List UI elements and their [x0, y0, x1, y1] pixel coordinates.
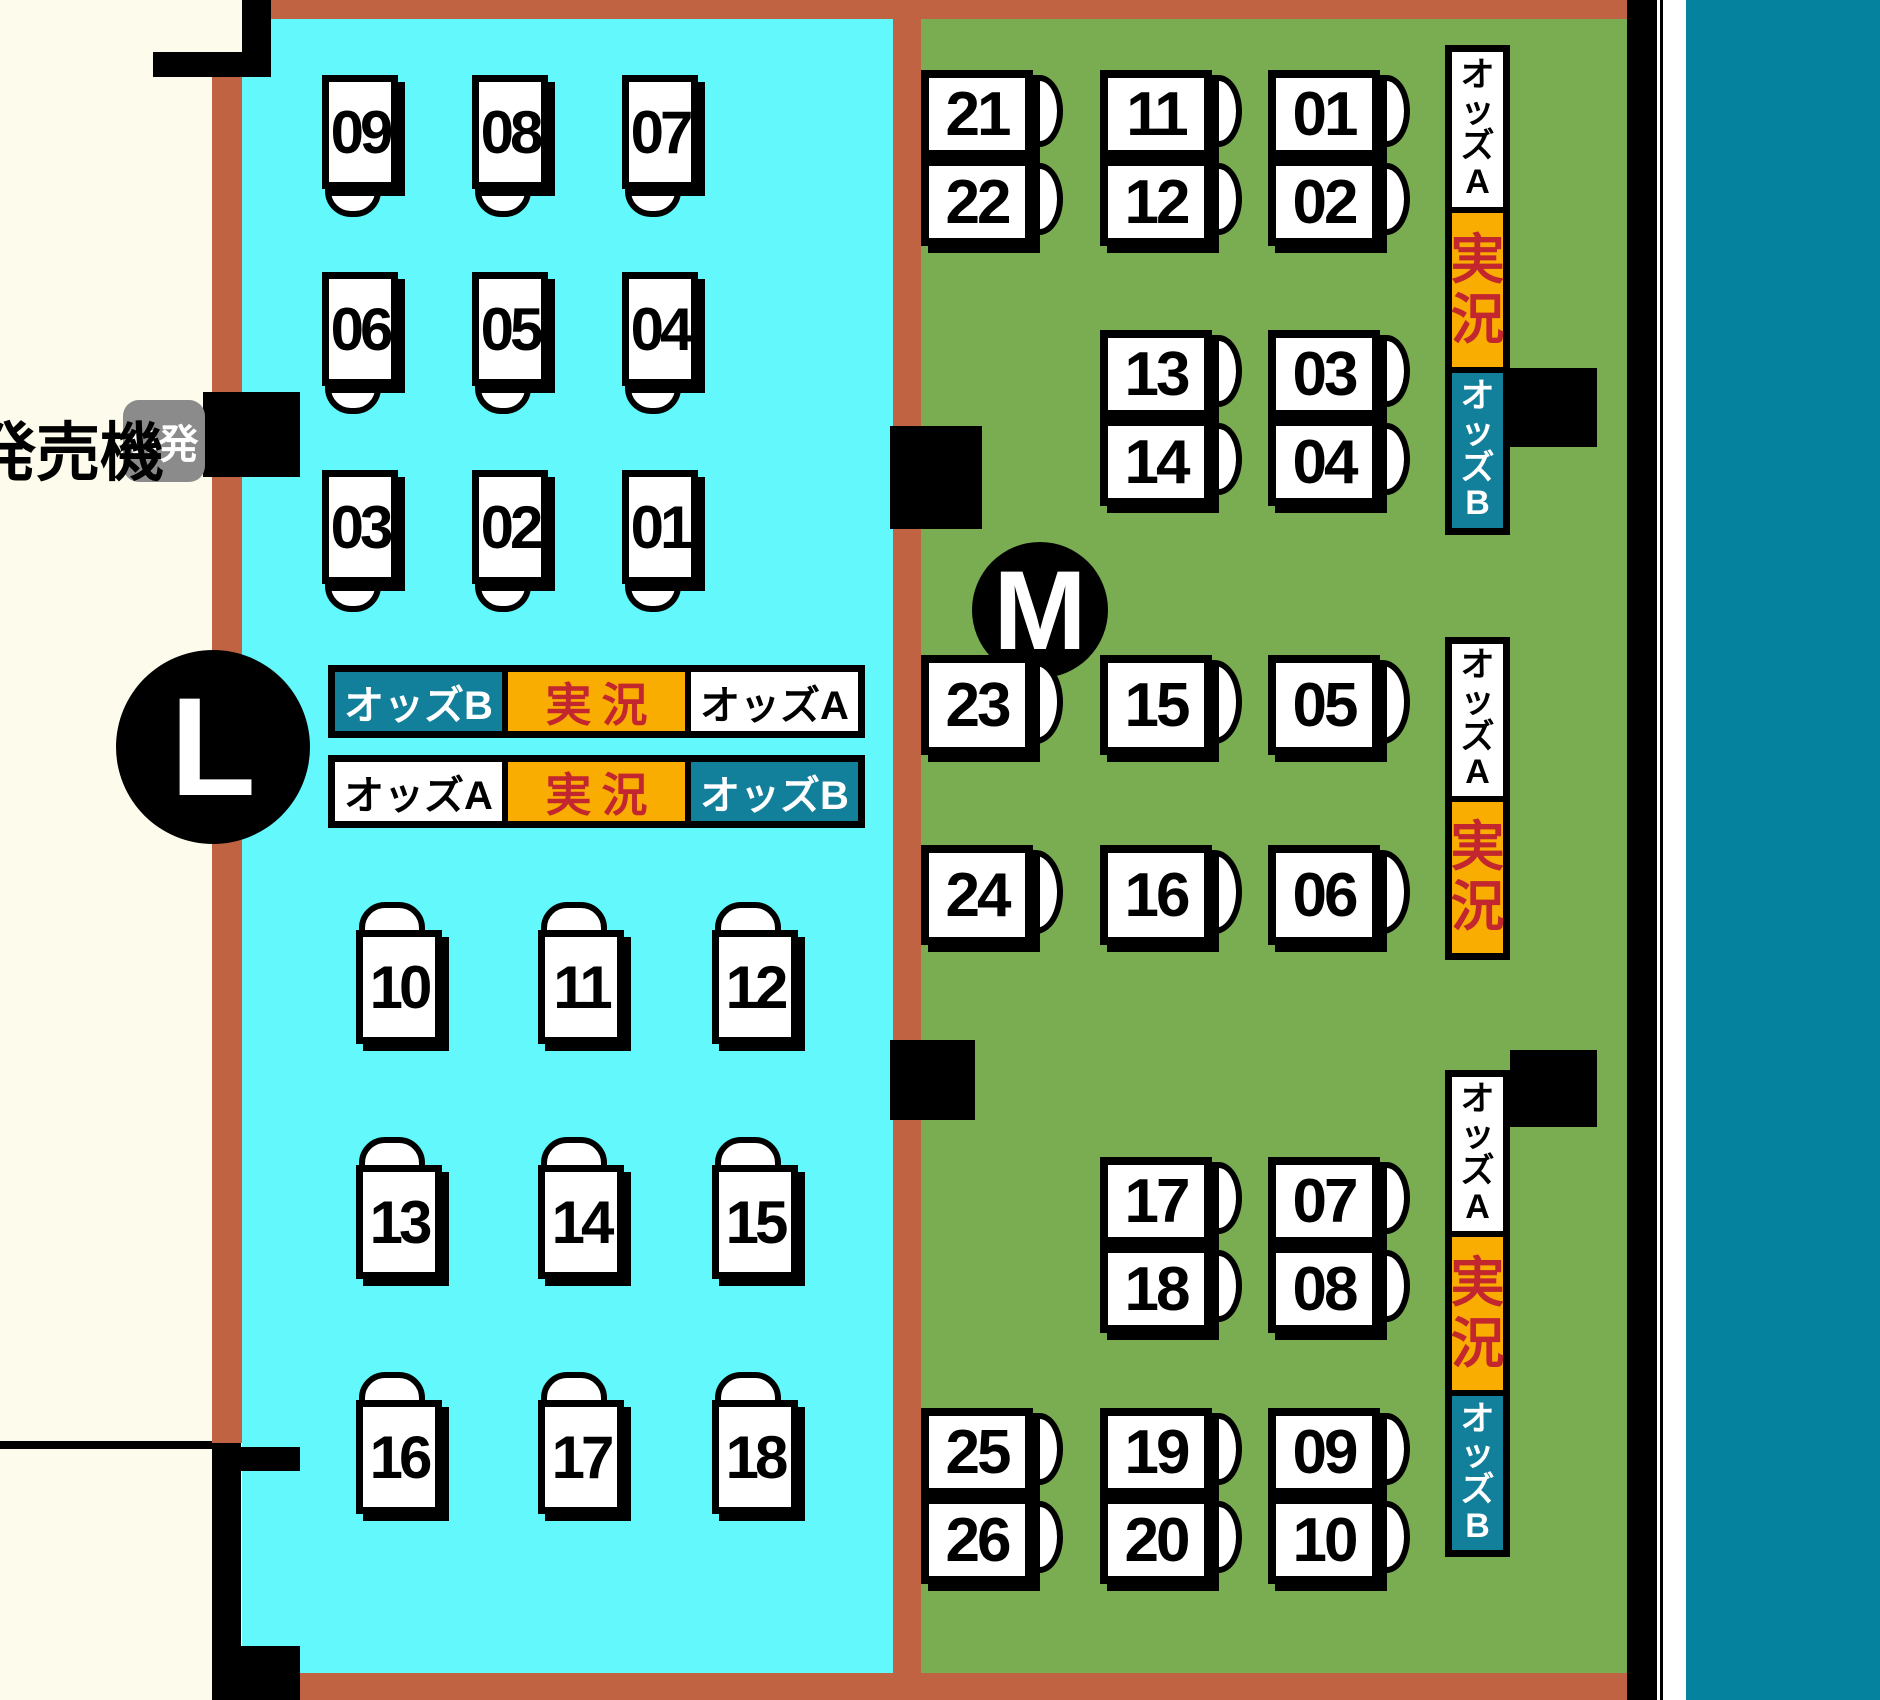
marker-number: 19 — [1125, 1417, 1188, 1488]
marker-number: 05 — [1293, 670, 1356, 741]
sign-segment-live: 実況 — [1452, 213, 1503, 368]
monitor-number: 04 — [631, 295, 690, 364]
marker-box: 17 — [1100, 1157, 1212, 1245]
marker-number: 08 — [1293, 1254, 1356, 1325]
sign-segment-char: ズ — [1461, 129, 1495, 165]
bottom-left-wall-block-top — [212, 1447, 300, 1471]
monitor-number: 08 — [481, 98, 540, 167]
sign-segment-char: ズ — [1461, 720, 1495, 756]
marker-15: 15 — [1100, 655, 1212, 755]
monitor-screen: 06 — [322, 272, 398, 386]
monitor-number: 02 — [481, 493, 540, 562]
sign-segment-char: ズ — [1461, 451, 1495, 487]
marker-number: 12 — [1125, 167, 1188, 238]
marker-box: 20 — [1100, 1496, 1212, 1584]
marker-07: 07 — [1268, 1157, 1380, 1245]
sign-segment-odds_a: オッズA — [1452, 644, 1503, 796]
marker-number: 14 — [1125, 427, 1188, 498]
marker-number: 26 — [946, 1505, 1009, 1576]
marker-10: 10 — [1268, 1496, 1380, 1584]
monitor-05: 05 — [472, 272, 548, 414]
marker-24: 24 — [921, 845, 1033, 945]
marker-number: 22 — [946, 167, 1009, 238]
marker-group-23: 23 — [921, 655, 1063, 755]
marker-group-05: 05 — [1268, 655, 1410, 755]
sign-segment-odds_a: オッズA — [1452, 1077, 1503, 1231]
marker-box: 18 — [1100, 1245, 1212, 1333]
sign-segment-char: B — [1465, 486, 1490, 522]
sign-segment-odds_b: オッズB — [335, 672, 502, 731]
marker-box: 16 — [1100, 845, 1212, 945]
marker-17: 17 — [1100, 1157, 1212, 1245]
monitor-07: 07 — [622, 75, 698, 217]
marker-box: 24 — [921, 845, 1033, 945]
monitor-screen: 02 — [472, 470, 548, 584]
border-top — [271, 0, 1627, 19]
monitor-08: 08 — [472, 75, 548, 217]
border-divider — [893, 19, 921, 1700]
marker-number: 21 — [946, 79, 1009, 150]
marker-box: 06 — [1268, 845, 1380, 945]
monitor-12: 12 — [712, 902, 798, 1044]
sign-segment-char: ッ — [1461, 1437, 1495, 1473]
marker-number: 09 — [1293, 1417, 1356, 1488]
sign-bar-vertical-2: オッズA実況 — [1445, 637, 1510, 960]
monitor-number: 16 — [370, 1423, 429, 1492]
sign-segment-odds_a: オッズA — [1452, 52, 1503, 207]
top-left-wall-horizontal — [153, 52, 271, 77]
marker-number: 13 — [1125, 339, 1188, 410]
sign-segment-char: ッ — [1461, 1118, 1495, 1154]
monitor-number: 03 — [331, 493, 390, 562]
sign-segment-live: 実況 — [508, 762, 685, 821]
marker-box: 10 — [1268, 1496, 1380, 1584]
monitor-number: 13 — [370, 1188, 429, 1257]
sign-segment-label: オッズB — [700, 763, 849, 821]
marker-number: 20 — [1125, 1505, 1188, 1576]
marker-20: 20 — [1100, 1496, 1212, 1584]
monitor-screen: 17 — [538, 1400, 624, 1514]
monitor-06: 06 — [322, 272, 398, 414]
sign-segment-label: 実況 — [546, 669, 658, 735]
marker-25: 25 — [921, 1408, 1033, 1496]
marker-number: 11 — [1126, 79, 1186, 150]
marker-box: 23 — [921, 655, 1033, 755]
marker-21: 21 — [921, 70, 1033, 158]
monitor-17: 17 — [538, 1372, 624, 1514]
water-area — [1686, 0, 1880, 1700]
marker-number: 25 — [946, 1417, 1009, 1488]
marker-06: 06 — [1268, 845, 1380, 945]
monitor-number: 06 — [331, 295, 390, 364]
monitor-number: 12 — [726, 953, 785, 1022]
monitor-number: 01 — [631, 493, 690, 562]
marker-box: 22 — [921, 158, 1033, 246]
marker-group-09-10: 0910 — [1268, 1408, 1410, 1584]
monitor-04: 04 — [622, 272, 698, 414]
monitor-screen: 10 — [356, 930, 442, 1044]
marker-03: 03 — [1268, 330, 1380, 418]
sign-segment-char: オ — [1461, 1082, 1495, 1118]
monitor-screen: 01 — [622, 470, 698, 584]
sign-segment-odds_a: オッズA — [335, 762, 502, 821]
marker-number: 02 — [1293, 167, 1356, 238]
monitor-screen: 09 — [322, 75, 398, 189]
marker-box: 01 — [1268, 70, 1380, 158]
marker-box: 04 — [1268, 418, 1380, 506]
sign-segment-char: 況 — [1451, 290, 1505, 350]
marker-number: 17 — [1125, 1166, 1188, 1237]
sign-segment-live: 実況 — [1452, 802, 1503, 954]
entrance-marker-right-upper — [1510, 368, 1597, 447]
marker-number: 10 — [1293, 1505, 1356, 1576]
sign-segment-live: 実況 — [508, 672, 685, 731]
sign-segment-char: 実 — [1451, 230, 1505, 290]
monitor-16: 16 — [356, 1372, 442, 1514]
sign-segment-char: ズ — [1461, 1154, 1495, 1190]
sign-segment-char: オ — [1461, 1402, 1495, 1438]
marker-box: 19 — [1100, 1408, 1212, 1496]
monitor-number: 18 — [726, 1423, 785, 1492]
marker-11: 11 — [1100, 70, 1212, 158]
sign-segment-char: オ — [1461, 379, 1495, 415]
marker-box: 25 — [921, 1408, 1033, 1496]
marker-26: 26 — [921, 1496, 1033, 1584]
zone-l-letter: L — [170, 666, 256, 828]
sign-segment-label: オッズA — [344, 763, 493, 821]
sign-segment-char: 実 — [1451, 1253, 1505, 1313]
monitor-screen: 14 — [538, 1165, 624, 1279]
sign-segment-char: ッ — [1461, 415, 1495, 451]
monitor-02: 02 — [472, 470, 548, 612]
marker-box: 09 — [1268, 1408, 1380, 1496]
marker-box: 11 — [1100, 70, 1212, 158]
sign-segment-label: オッズA — [700, 673, 849, 731]
sign-segment-char: ズ — [1461, 1473, 1495, 1509]
marker-box: 15 — [1100, 655, 1212, 755]
monitor-number: 14 — [552, 1188, 611, 1257]
marker-box: 05 — [1268, 655, 1380, 755]
marker-number: 23 — [946, 670, 1009, 741]
sign-segment-char: オ — [1461, 58, 1495, 94]
marker-22: 22 — [921, 158, 1033, 246]
entrance-marker-divider-lower — [890, 1040, 975, 1120]
sign-segment-char: ッ — [1461, 684, 1495, 720]
marker-02: 02 — [1268, 158, 1380, 246]
sign-segment-char: A — [1465, 1190, 1490, 1226]
monitor-number: 07 — [631, 98, 690, 167]
marker-box: 13 — [1100, 330, 1212, 418]
marker-08: 08 — [1268, 1245, 1380, 1333]
monitor-screen: 03 — [322, 470, 398, 584]
marker-group-24: 24 — [921, 845, 1063, 945]
sign-bar-vertical-3: オッズA実況オッズB — [1445, 1070, 1510, 1557]
marker-number: 06 — [1293, 860, 1356, 931]
right-corridor-line — [1660, 0, 1663, 1700]
entrance-marker-right-lower — [1510, 1050, 1597, 1127]
marker-group-06: 06 — [1268, 845, 1410, 945]
floor-map: 発売機 U発 L M 09080706050403020110111213141… — [0, 0, 1880, 1700]
marker-group-19-20: 1920 — [1100, 1408, 1242, 1584]
monitor-screen: 08 — [472, 75, 548, 189]
marker-23: 23 — [921, 655, 1033, 755]
monitor-number: 11 — [553, 953, 608, 1022]
monitor-14: 14 — [538, 1137, 624, 1279]
marker-number: 07 — [1293, 1166, 1356, 1237]
monitor-number: 05 — [481, 295, 540, 364]
monitor-15: 15 — [712, 1137, 798, 1279]
marker-number: 03 — [1293, 339, 1356, 410]
monitor-screen: 15 — [712, 1165, 798, 1279]
marker-number: 01 — [1293, 79, 1356, 150]
sign-segment-char: A — [1465, 165, 1490, 201]
marker-01: 01 — [1268, 70, 1380, 158]
marker-box: 08 — [1268, 1245, 1380, 1333]
monitor-09: 09 — [322, 75, 398, 217]
monitor-18: 18 — [712, 1372, 798, 1514]
monitor-11: 11 — [538, 902, 624, 1044]
monitor-number: 15 — [726, 1188, 785, 1257]
marker-16: 16 — [1100, 845, 1212, 945]
marker-box: 21 — [921, 70, 1033, 158]
bottom-left-wall-line — [0, 1441, 212, 1449]
entrance-marker-divider-upper — [890, 426, 982, 529]
sign-segment-char: 況 — [1451, 1314, 1505, 1374]
sign-segment-odds_b: オッズB — [1452, 373, 1503, 528]
marker-group-03-04: 0304 — [1268, 330, 1410, 506]
monitor-number: 10 — [370, 953, 429, 1022]
bottom-left-wall-block-bottom — [212, 1646, 300, 1700]
zone-l-circle: L — [116, 650, 310, 844]
sign-segment-live: 実況 — [1452, 1237, 1503, 1391]
marker-box: 03 — [1268, 330, 1380, 418]
sign-segment-label: オッズB — [344, 673, 493, 731]
sign-segment-char: オ — [1461, 648, 1495, 684]
marker-group-13-14: 1314 — [1100, 330, 1242, 506]
border-bottom — [242, 1673, 1627, 1700]
marker-number: 16 — [1125, 860, 1188, 931]
monitor-03: 03 — [322, 470, 398, 612]
monitor-screen: 12 — [712, 930, 798, 1044]
entrance-marker-left — [203, 392, 300, 477]
monitor-screen: 05 — [472, 272, 548, 386]
sign-segment-char: 況 — [1451, 877, 1505, 937]
sign-segment-odds_b: オッズB — [691, 762, 858, 821]
marker-number: 24 — [946, 860, 1009, 931]
sign-bar-horizontal-1: オッズB実況オッズA — [328, 665, 865, 738]
marker-04: 04 — [1268, 418, 1380, 506]
monitor-screen: 18 — [712, 1400, 798, 1514]
marker-group-01-02: 0102 — [1268, 70, 1410, 246]
marker-number: 18 — [1125, 1254, 1188, 1325]
monitor-screen: 04 — [622, 272, 698, 386]
sign-bar-horizontal-2: オッズA実況オッズB — [328, 755, 865, 828]
marker-group-21-22: 2122 — [921, 70, 1063, 246]
marker-14: 14 — [1100, 418, 1212, 506]
marker-group-16: 16 — [1100, 845, 1242, 945]
sign-segment-char: 実 — [1451, 817, 1505, 877]
marker-group-15: 15 — [1100, 655, 1242, 755]
marker-13: 13 — [1100, 330, 1212, 418]
monitor-number: 09 — [331, 98, 390, 167]
marker-box: 12 — [1100, 158, 1212, 246]
marker-box: 14 — [1100, 418, 1212, 506]
marker-09: 09 — [1268, 1408, 1380, 1496]
marker-group-25-26: 2526 — [921, 1408, 1063, 1584]
sign-bar-vertical-1: オッズA実況オッズB — [1445, 45, 1510, 535]
monitor-screen: 07 — [622, 75, 698, 189]
marker-19: 19 — [1100, 1408, 1212, 1496]
sign-segment-char: A — [1465, 755, 1490, 791]
marker-box: 07 — [1268, 1157, 1380, 1245]
marker-05: 05 — [1268, 655, 1380, 755]
sign-segment-label: 実況 — [546, 759, 658, 825]
vending-machine-label: 発売機 — [0, 402, 164, 494]
sign-segment-char: B — [1465, 1509, 1490, 1545]
sign-segment-char: ッ — [1461, 94, 1495, 130]
monitor-number: 17 — [552, 1423, 611, 1492]
monitor-screen: 13 — [356, 1165, 442, 1279]
marker-group-07-08: 0708 — [1268, 1157, 1410, 1333]
monitor-13: 13 — [356, 1137, 442, 1279]
sign-segment-odds_a: オッズA — [691, 672, 858, 731]
marker-box: 26 — [921, 1496, 1033, 1584]
right-wall — [1627, 0, 1657, 1700]
marker-box: 02 — [1268, 158, 1380, 246]
monitor-01: 01 — [622, 470, 698, 612]
monitor-10: 10 — [356, 902, 442, 1044]
sign-segment-odds_b: オッズB — [1452, 1396, 1503, 1550]
marker-number: 04 — [1293, 427, 1356, 498]
marker-12: 12 — [1100, 158, 1212, 246]
marker-number: 15 — [1125, 670, 1188, 741]
marker-18: 18 — [1100, 1245, 1212, 1333]
monitor-screen: 16 — [356, 1400, 442, 1514]
marker-group-17-18: 1718 — [1100, 1157, 1242, 1333]
marker-group-11-12: 1112 — [1100, 70, 1242, 246]
monitor-screen: 11 — [538, 930, 624, 1044]
